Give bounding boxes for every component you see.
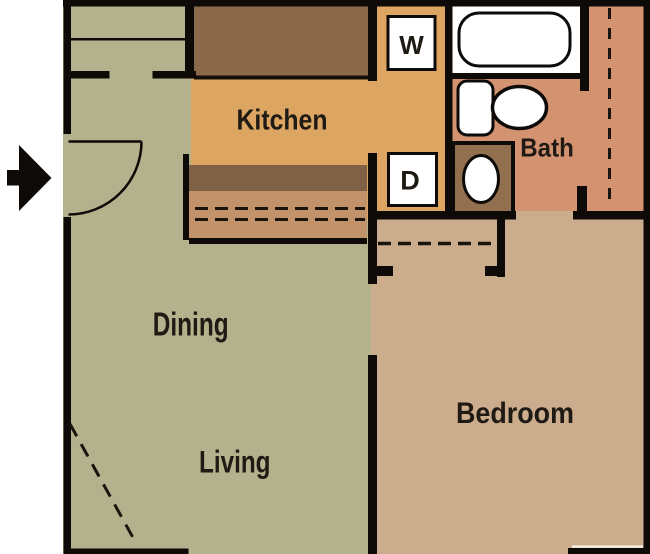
svg-text:W: W [399, 30, 424, 60]
svg-text:Bedroom: Bedroom [456, 397, 574, 430]
svg-text:Dining: Dining [153, 305, 229, 342]
svg-text:Bath: Bath [520, 132, 574, 162]
svg-text:Living: Living [199, 444, 271, 480]
svg-text:D: D [400, 166, 420, 196]
svg-text:Kitchen: Kitchen [237, 105, 328, 137]
